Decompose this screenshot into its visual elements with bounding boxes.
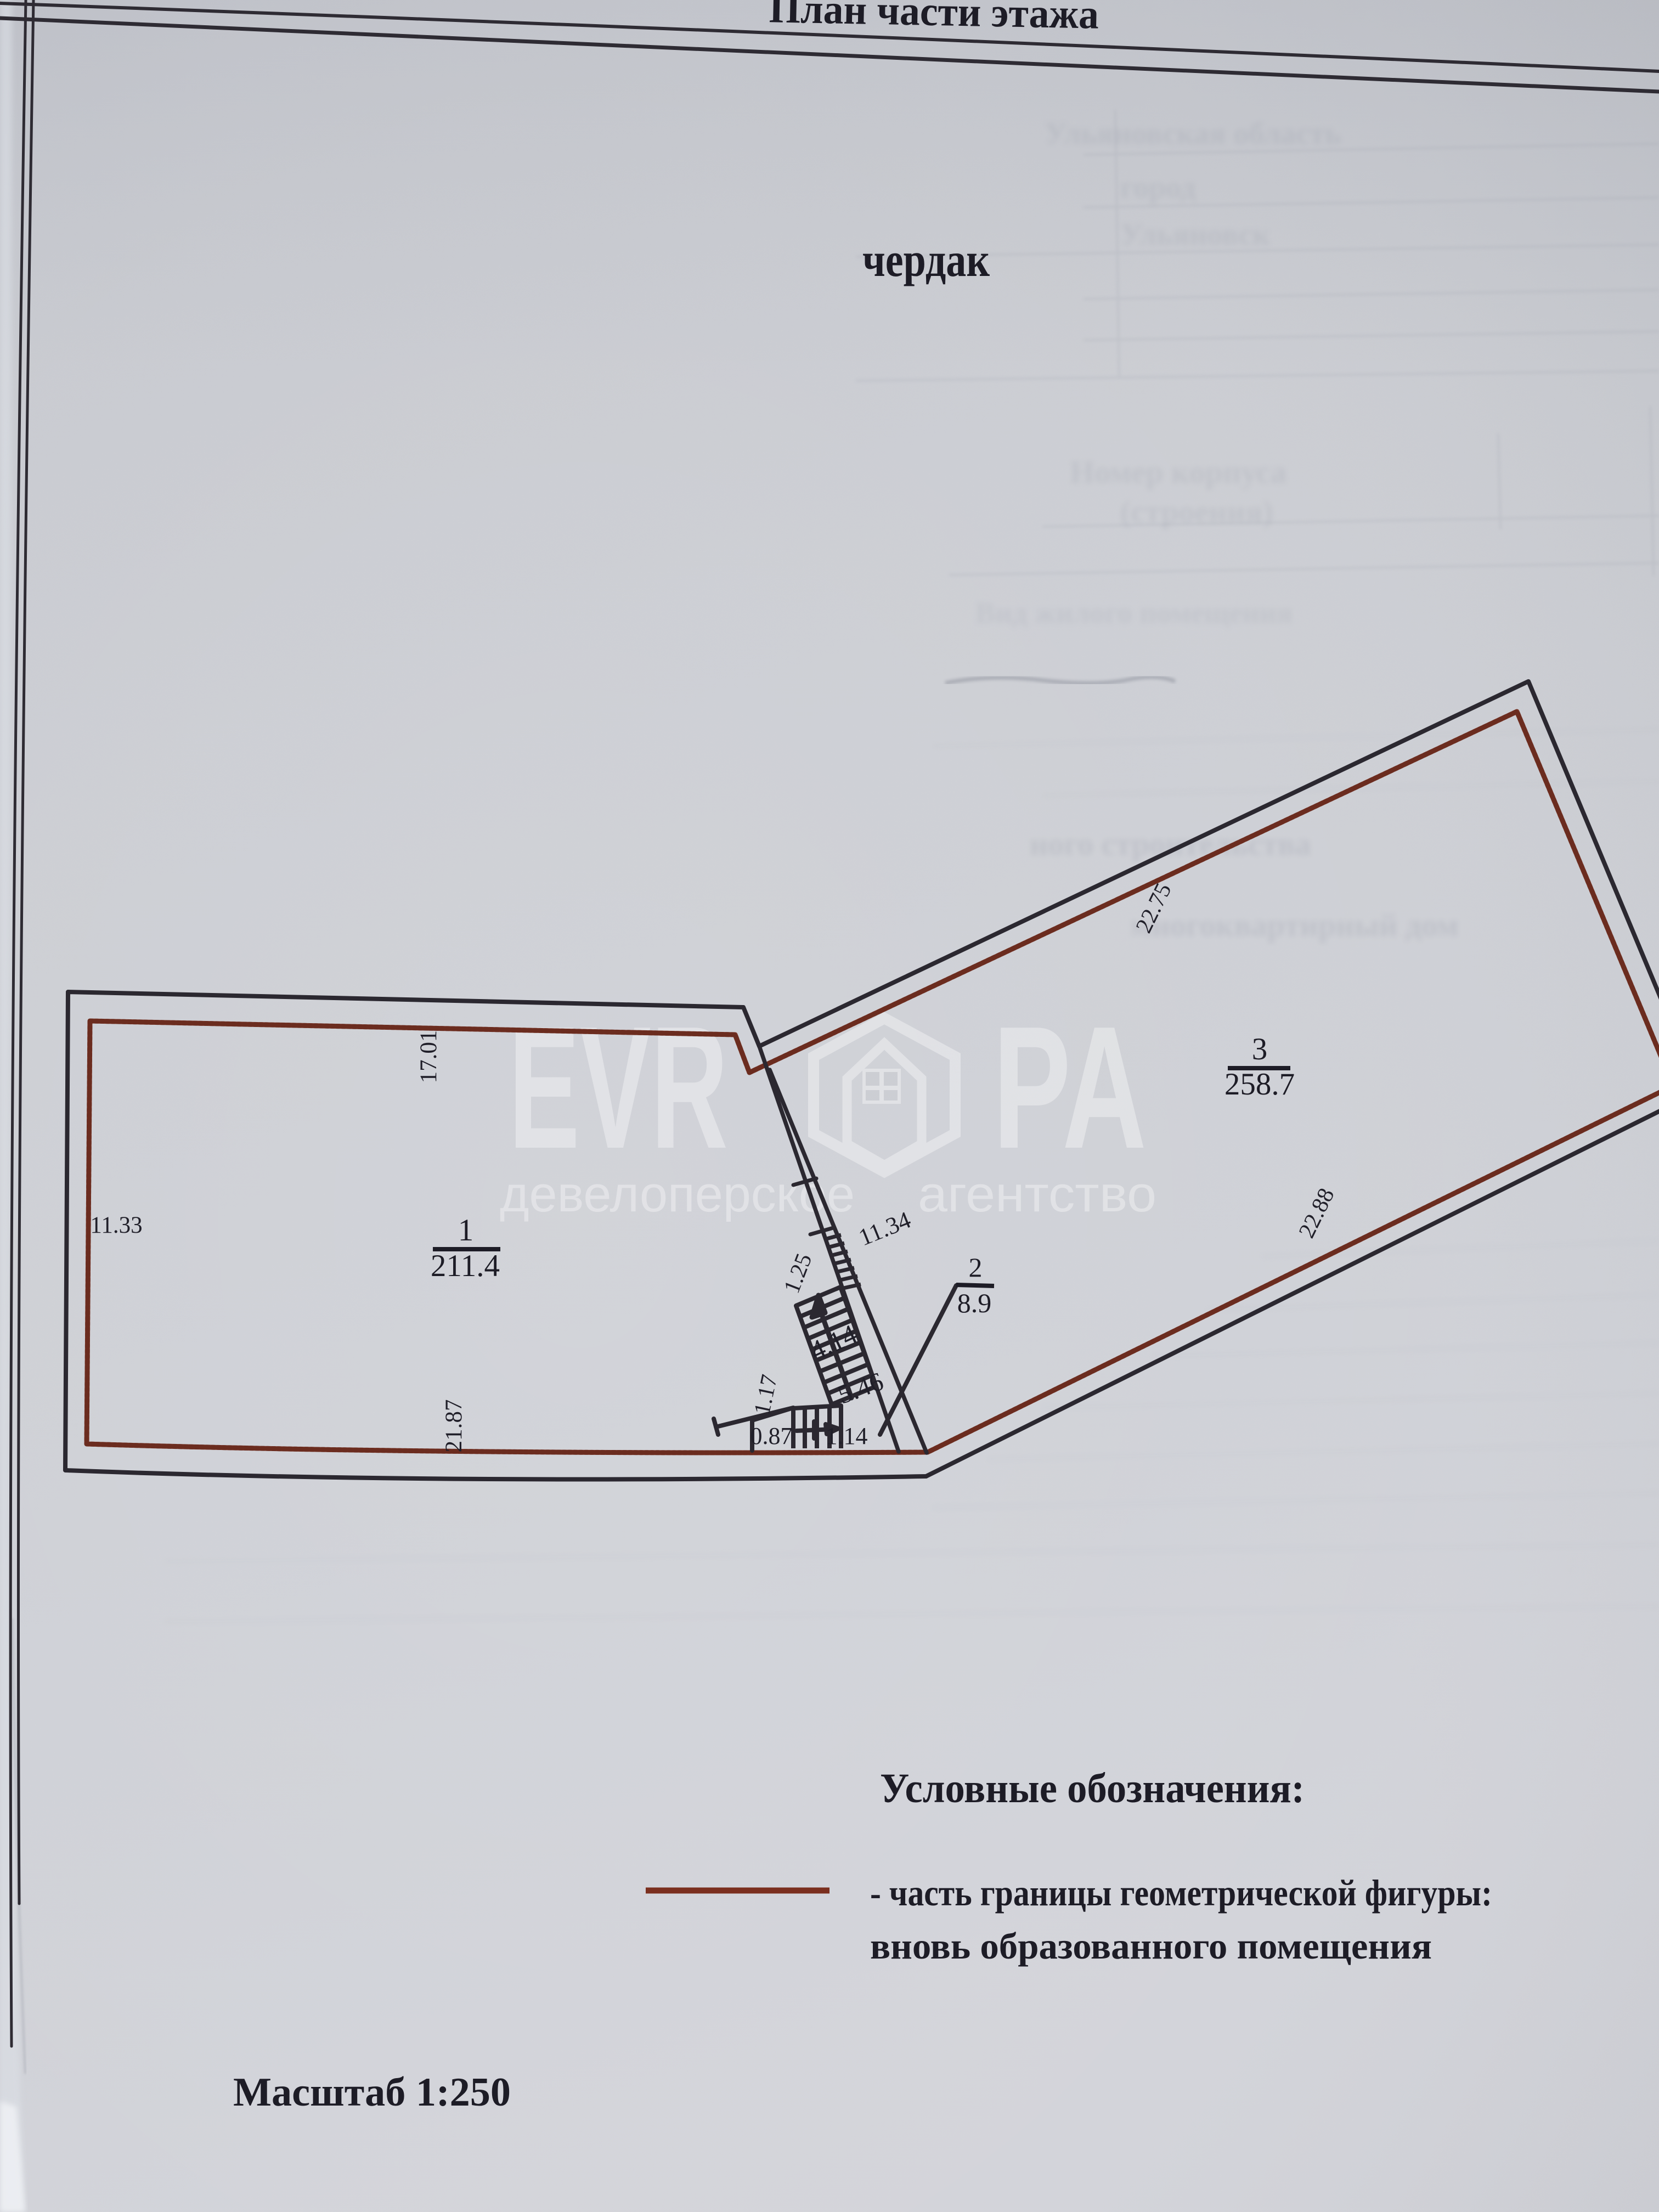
svg-text:1.14: 1.14 xyxy=(826,1423,868,1449)
svg-text:Ульяновская область: Ульяновская область xyxy=(1045,117,1341,151)
svg-text:План части этажа: План части этажа xyxy=(769,0,1099,38)
svg-text:8.9: 8.9 xyxy=(957,1288,992,1318)
svg-text:258.7: 258.7 xyxy=(1224,1067,1295,1102)
svg-text:3: 3 xyxy=(1252,1032,1268,1066)
svg-text:Условные обозначения:: Условные обозначения: xyxy=(880,1765,1305,1812)
svg-text:0.87: 0.87 xyxy=(751,1423,793,1449)
svg-text:2: 2 xyxy=(969,1252,983,1283)
svg-text:многоквартирный дом: многоквартирный дом xyxy=(1130,907,1459,943)
svg-text:- часть границы геометрической: - часть границы геометрической фигуры: xyxy=(870,1872,1492,1914)
svg-text:Номер корпуса: Номер корпуса xyxy=(1070,454,1286,490)
svg-text:17.01: 17.01 xyxy=(416,1030,442,1084)
svg-text:21.87: 21.87 xyxy=(441,1400,467,1453)
svg-text:вновь образованного помещения: вновь образованного помещения xyxy=(870,1925,1432,1967)
svg-text:Масштаб 1:250: Масштаб 1:250 xyxy=(233,2070,511,2115)
svg-text:город: город xyxy=(1120,171,1196,205)
svg-text:Вид жилого помещения: Вид жилого помещения xyxy=(975,596,1293,629)
svg-text:(строения): (строения) xyxy=(1120,494,1273,529)
svg-text:PA: PA xyxy=(993,990,1147,1185)
svg-text:чердак: чердак xyxy=(862,234,990,287)
svg-text:EVR: EVR xyxy=(509,990,728,1185)
svg-text:11.33: 11.33 xyxy=(90,1212,142,1238)
svg-text:211.4: 211.4 xyxy=(431,1249,500,1283)
svg-text:агентство: агентство xyxy=(918,1166,1156,1222)
svg-text:1: 1 xyxy=(458,1213,474,1248)
svg-text:ного строительства: ного строительства xyxy=(1030,826,1311,862)
svg-text:Ульяновск: Ульяновск xyxy=(1120,218,1271,252)
